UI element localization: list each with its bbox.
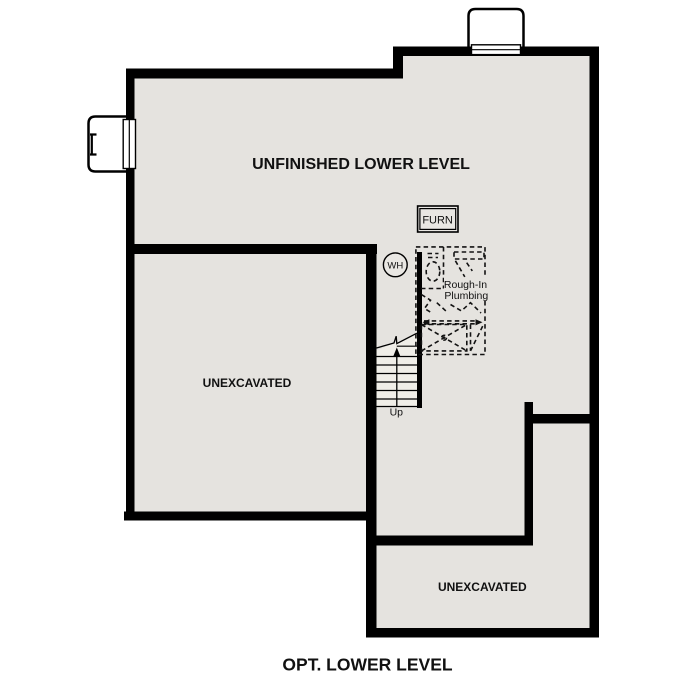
svg-text:UNFINISHED LOWER LEVEL: UNFINISHED LOWER LEVEL [252,156,470,173]
svg-text:OPT. LOWER LEVEL: OPT. LOWER LEVEL [282,655,452,675]
svg-text:Rough-In: Rough-In [444,279,487,291]
svg-text:UNEXCAVATED: UNEXCAVATED [438,580,527,594]
svg-text:Plumbing: Plumbing [444,290,488,302]
svg-text:FURN: FURN [422,215,453,227]
svg-text:UNEXCAVATED: UNEXCAVATED [203,376,292,390]
svg-text:Up: Up [390,407,404,419]
svg-text:WH: WH [387,260,403,271]
